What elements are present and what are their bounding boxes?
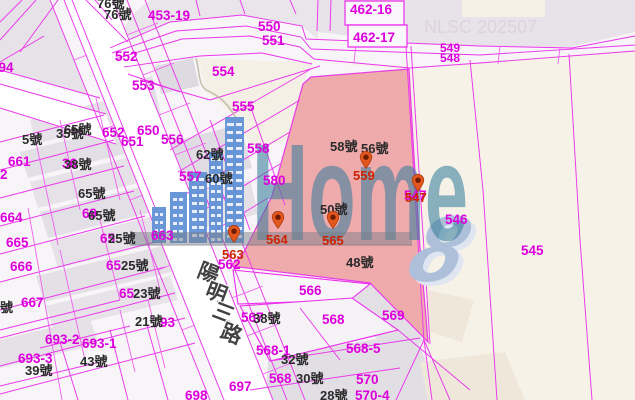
svg-text:30號: 30號 xyxy=(296,371,323,386)
svg-text:545: 545 xyxy=(521,243,544,258)
svg-text:552: 552 xyxy=(115,49,138,64)
svg-text:548: 548 xyxy=(440,51,460,65)
svg-text:665: 665 xyxy=(6,235,29,250)
svg-text:553: 553 xyxy=(132,78,155,93)
svg-text:666: 666 xyxy=(10,259,33,274)
svg-text:568: 568 xyxy=(269,371,292,386)
svg-text:580: 580 xyxy=(263,173,286,188)
svg-text:664: 664 xyxy=(0,210,23,225)
svg-text:5號: 5號 xyxy=(22,132,42,147)
svg-text:65: 65 xyxy=(106,258,122,273)
svg-text:462-16: 462-16 xyxy=(350,2,393,17)
svg-text:570-4: 570-4 xyxy=(355,388,390,400)
svg-text:462-17: 462-17 xyxy=(353,30,395,45)
svg-text:547: 547 xyxy=(405,190,427,205)
svg-text:661: 661 xyxy=(8,154,31,169)
svg-text:NLSC 202507: NLSC 202507 xyxy=(424,17,537,37)
svg-text:564: 564 xyxy=(266,232,288,247)
svg-text:28號: 28號 xyxy=(320,388,347,400)
svg-text:562: 562 xyxy=(218,257,241,272)
svg-text:693-1: 693-1 xyxy=(82,336,117,351)
svg-text:556: 556 xyxy=(161,132,184,147)
svg-text:651: 651 xyxy=(121,134,144,149)
svg-text:43號: 43號 xyxy=(80,354,107,369)
svg-text:60號: 60號 xyxy=(205,171,232,186)
svg-text:550: 550 xyxy=(258,19,281,34)
svg-text:76號: 76號 xyxy=(104,7,131,22)
svg-text:663: 663 xyxy=(151,228,174,243)
svg-text:697: 697 xyxy=(229,379,252,394)
svg-text:555: 555 xyxy=(232,99,255,114)
svg-text:62號: 62號 xyxy=(196,147,223,162)
svg-text:557: 557 xyxy=(179,169,202,184)
svg-text:551: 551 xyxy=(262,33,285,48)
svg-text:38號: 38號 xyxy=(64,157,91,172)
svg-text:2: 2 xyxy=(0,167,8,182)
svg-text:65號: 65號 xyxy=(88,208,115,223)
svg-text:568-5: 568-5 xyxy=(346,341,381,356)
svg-text:39號: 39號 xyxy=(25,363,52,378)
svg-text:569: 569 xyxy=(382,308,405,323)
svg-text:32號: 32號 xyxy=(281,352,308,367)
svg-text:65號: 65號 xyxy=(78,186,105,201)
svg-text:570: 570 xyxy=(356,372,379,387)
svg-text:48號: 48號 xyxy=(346,255,373,270)
svg-text:23號: 23號 xyxy=(133,286,160,301)
svg-text:693-2: 693-2 xyxy=(45,332,80,347)
svg-text:21號: 21號 xyxy=(135,314,162,329)
svg-text:565: 565 xyxy=(322,233,344,248)
svg-text:559: 559 xyxy=(353,168,375,183)
svg-text:65號: 65號 xyxy=(64,122,91,137)
svg-text:453-19: 453-19 xyxy=(148,8,190,23)
svg-text:546: 546 xyxy=(445,212,468,227)
svg-text:554: 554 xyxy=(212,64,235,79)
svg-text:698: 698 xyxy=(185,388,208,400)
svg-text:25號: 25號 xyxy=(121,258,148,273)
svg-text:566: 566 xyxy=(299,283,322,298)
svg-text:694: 694 xyxy=(0,60,14,75)
svg-text:25號: 25號 xyxy=(108,231,135,246)
svg-text:667: 667 xyxy=(21,295,44,310)
svg-text:38號: 38號 xyxy=(253,311,280,326)
svg-text:568: 568 xyxy=(322,312,345,327)
svg-text:558: 558 xyxy=(247,141,270,156)
svg-text:58號: 58號 xyxy=(330,139,357,154)
svg-text:號: 號 xyxy=(0,300,13,315)
